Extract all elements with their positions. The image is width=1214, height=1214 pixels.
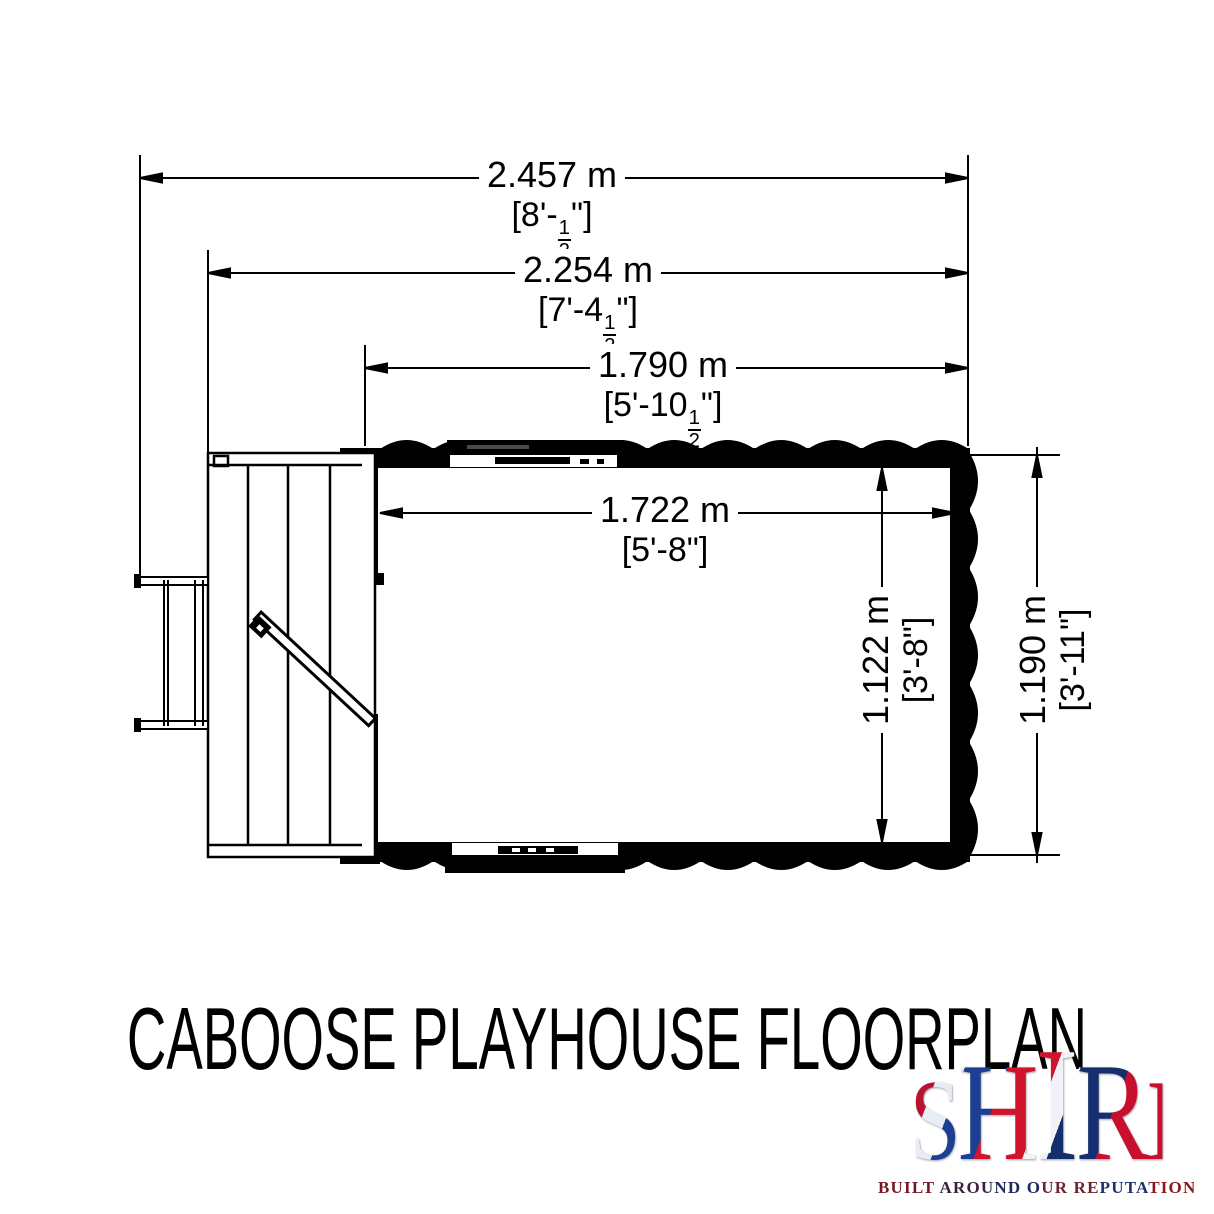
wall-bottom bbox=[340, 842, 970, 862]
shire-logo: SHIRE BUILT AROUND OUR REPUTATION bbox=[878, 1036, 1194, 1198]
dim-overall-depth-imperial: [3'-11"] bbox=[1053, 510, 1093, 810]
dim-interior-width-metric: 1.722 m bbox=[592, 489, 738, 530]
ladder-rail-bottom bbox=[136, 721, 208, 729]
arrow-up bbox=[1033, 455, 1042, 477]
window-front-latch-2 bbox=[597, 459, 604, 464]
arrow-down bbox=[1033, 833, 1042, 855]
arrow-down bbox=[878, 820, 887, 842]
ladder-rail-top bbox=[136, 577, 208, 585]
window-back-tick-1 bbox=[512, 848, 520, 852]
dim-overall-depth-metric: 1.190 m bbox=[1012, 587, 1053, 733]
dim-cabin-width: 1.790 m [5'-1012"] bbox=[513, 345, 813, 452]
dim-overall-width-metric: 2.457 m bbox=[479, 154, 625, 195]
arrow-right bbox=[946, 174, 968, 183]
dim-interior-depth-imperial: [3'-8"] bbox=[896, 510, 936, 810]
window-back-tick-3 bbox=[546, 848, 554, 852]
scallop-right-edge bbox=[969, 452, 978, 858]
access-ladder bbox=[135, 575, 208, 731]
shire-logo-wordmark: SHIRE bbox=[910, 1036, 1163, 1175]
arrow-left bbox=[208, 269, 230, 278]
dim-interior-width: 1.722 m [5'-8"] bbox=[515, 490, 815, 570]
arrow-right bbox=[946, 364, 968, 373]
window-back-outer-frame bbox=[445, 859, 625, 873]
window-back-sash bbox=[498, 846, 578, 854]
arrow-right bbox=[946, 269, 968, 278]
dim-body-width-metric: 2.254 m bbox=[515, 249, 661, 290]
wall-right bbox=[950, 448, 970, 862]
window-front-latch-1 bbox=[580, 459, 589, 464]
arrow-left bbox=[365, 364, 387, 373]
floorplan-page: 2.457 m [8'-12"] 2.254 m [7'-412"] 1.790… bbox=[0, 0, 1214, 1214]
dim-interior-depth: 1.122 m [3'-8"] bbox=[856, 510, 936, 810]
dim-interior-depth-metric: 1.122 m bbox=[855, 587, 896, 733]
dim-cabin-width-metric: 1.790 m bbox=[590, 344, 736, 385]
dim-overall-width: 2.457 m [8'-12"] bbox=[402, 155, 702, 262]
arrow-left bbox=[380, 509, 402, 518]
ladder-rail-bottom-cap bbox=[135, 719, 140, 731]
window-back-tick-2 bbox=[528, 848, 536, 852]
dim-body-width: 2.254 m [7'-412"] bbox=[438, 250, 738, 357]
arrow-left bbox=[140, 174, 162, 183]
dim-overall-depth: 1.190 m [3'-11"] bbox=[1013, 510, 1093, 810]
dim-cabin-width-imperial: [5'-1012"] bbox=[513, 385, 813, 452]
window-front-sash bbox=[495, 457, 570, 464]
ladder-rail-top-cap bbox=[135, 575, 140, 587]
arrow-up bbox=[878, 468, 887, 490]
dim-interior-width-imperial: [5'-8"] bbox=[515, 530, 815, 570]
